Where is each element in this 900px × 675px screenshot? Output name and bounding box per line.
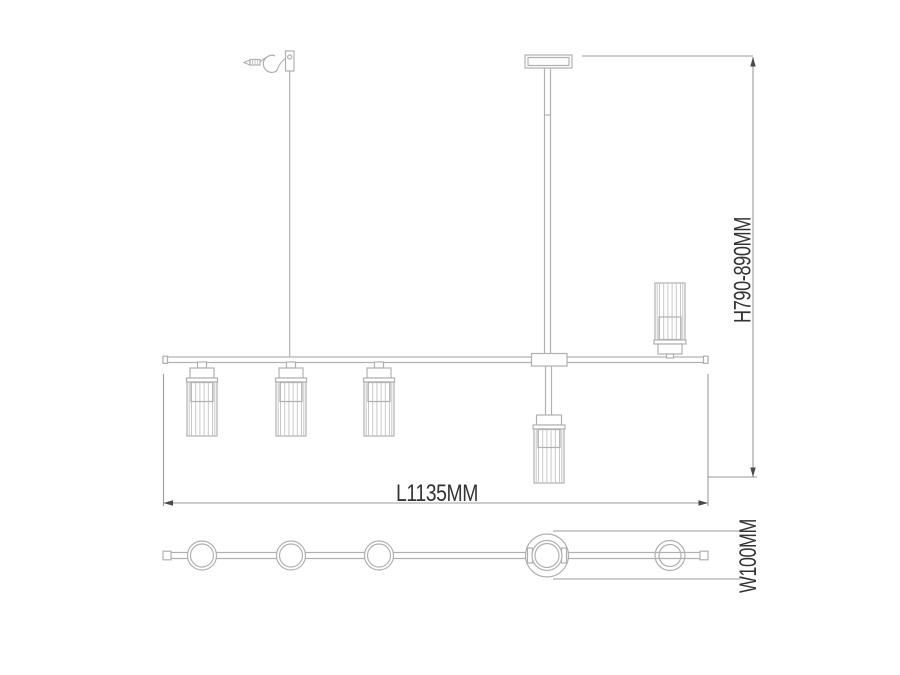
length-dimension-label: L1135MM [396, 480, 478, 507]
arrow-right-icon [699, 500, 709, 505]
arrow-down-icon [750, 468, 755, 478]
width-dimension-label: W100MM [735, 519, 762, 593]
cable-coil [260, 55, 286, 72]
plan-lamp-3 [365, 541, 394, 570]
plan-center-lamp [526, 534, 569, 577]
uplight-lamp [654, 283, 686, 358]
front-elevation-view [163, 51, 708, 483]
plan-uplight-lamp [655, 541, 685, 571]
arrow-up-icon [750, 57, 755, 67]
top-plan-view [163, 534, 708, 577]
ceiling-canopy [525, 55, 572, 68]
height-dimension: H790-890MM [582, 56, 757, 477]
fixture-bar [163, 356, 708, 363]
center-junction-box [532, 354, 568, 367]
chandelier-dimension-drawing: H790-890MM L1135MM W100MM [0, 0, 900, 675]
plan-lamp-1 [188, 541, 217, 570]
cable-adjuster [286, 51, 295, 71]
screw-tip-icon [244, 60, 250, 65]
length-dimension: L1135MM [164, 374, 709, 507]
height-dimension-label: H790-890MM [730, 217, 757, 323]
center-downrod [545, 68, 551, 354]
center-pendant-lamp [533, 366, 565, 483]
plan-bar [163, 551, 708, 560]
suspension-cable-assembly [244, 51, 294, 357]
pendant-lamp-3 [364, 362, 395, 436]
arrow-left-icon [164, 500, 174, 505]
drawing-canvas: H790-890MM L1135MM W100MM [0, 0, 900, 675]
pendant-lamp-2 [276, 362, 307, 436]
width-dimension: W100MM [553, 519, 762, 593]
plan-lamp-2 [277, 541, 306, 570]
pendant-lamp-1 [187, 362, 218, 436]
